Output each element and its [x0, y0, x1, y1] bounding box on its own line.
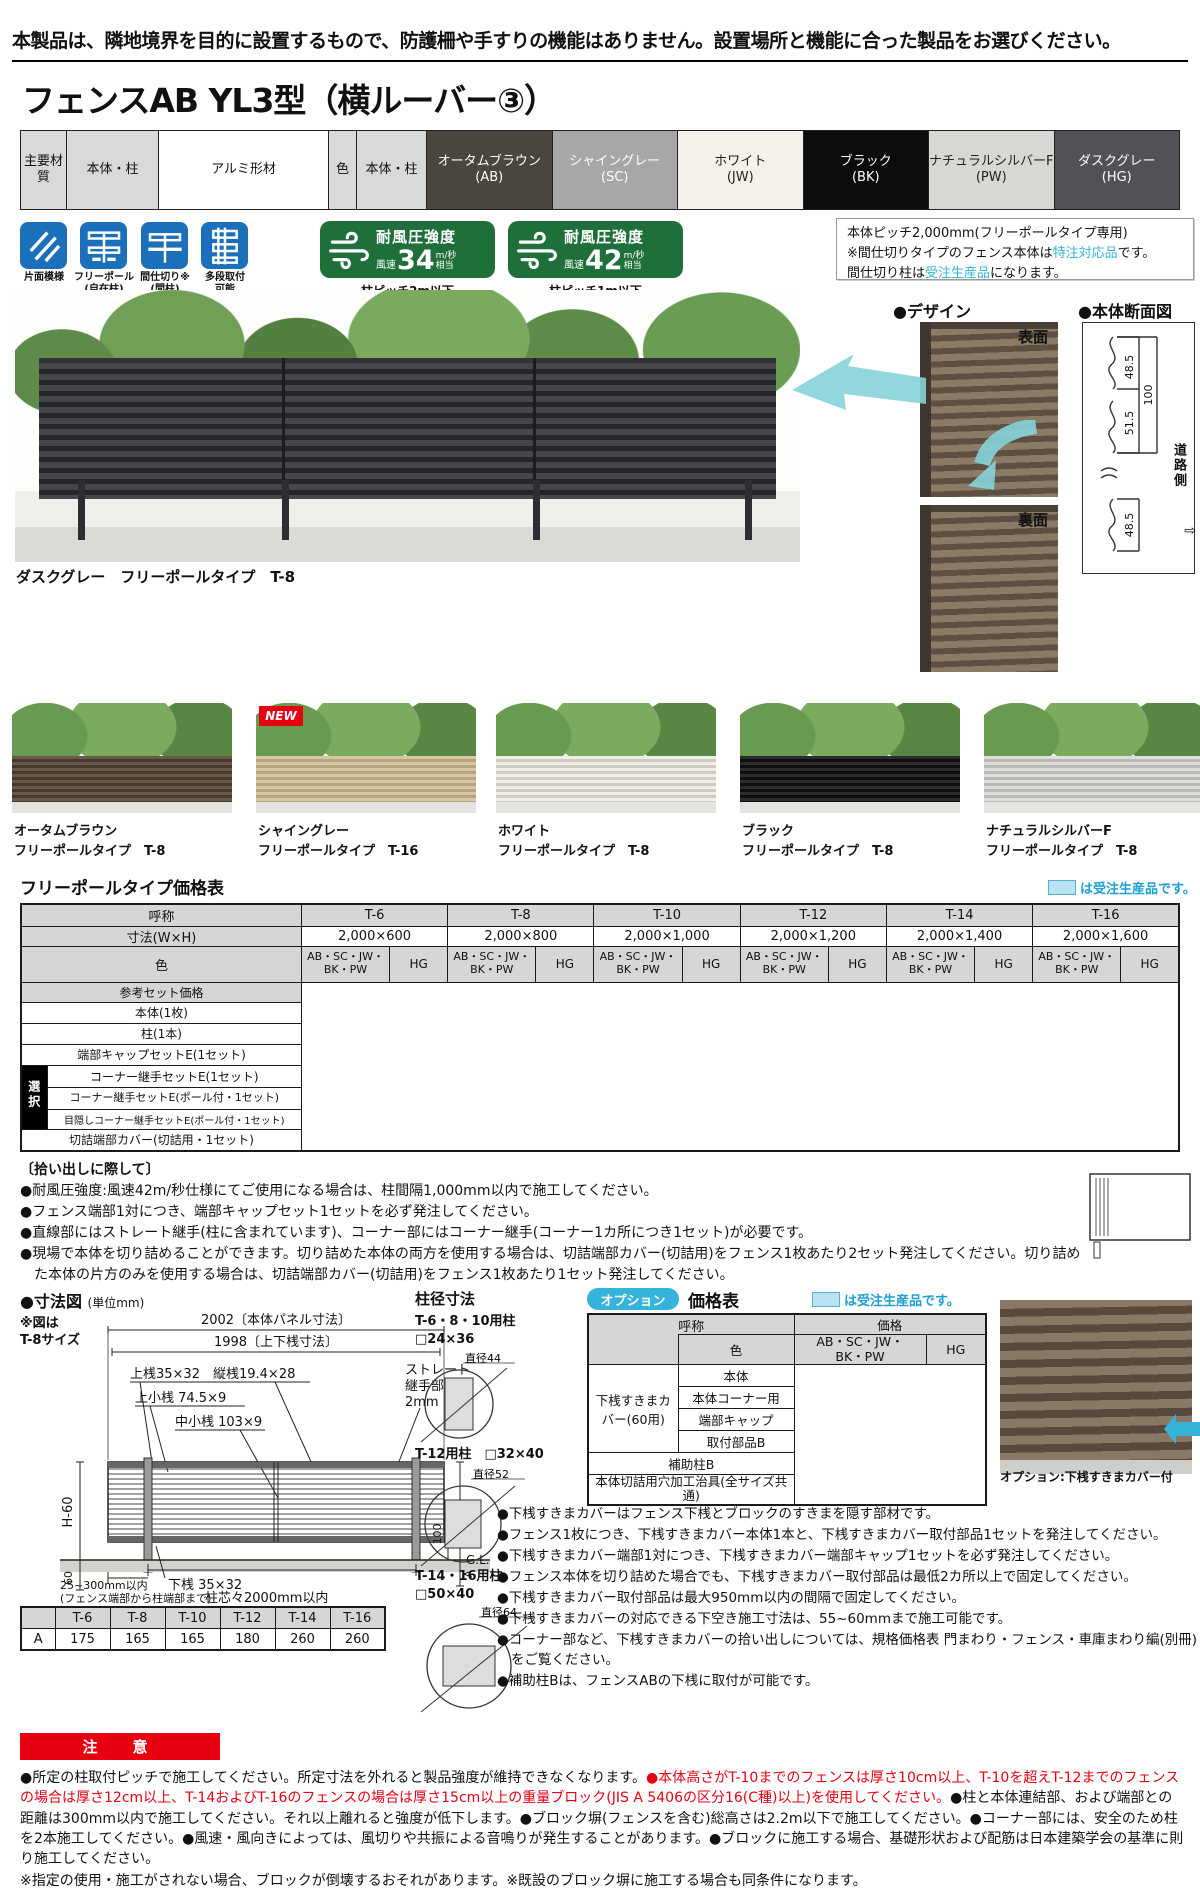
option-price-table: 呼称 色 価格 AB・SC・JW・BK・PW HG 下桟すきまカバー(60用) … [587, 1313, 987, 1506]
materials-value: アルミ形材 [159, 131, 329, 209]
option-note: ●下桟すきまカバー取付部品は最大950mm以内の間隔で固定してください。 [497, 1588, 1200, 1609]
photo-fence [39, 358, 777, 499]
materials-part-label: 本体・柱 [67, 131, 159, 209]
wind-badge-42: 耐風圧強度 風速 42 m/秒相当 [508, 221, 683, 278]
color-swatch-jw: ホワイト(JW) [678, 131, 804, 209]
post-circle-diagram-1: 直径44 [415, 1350, 535, 1444]
dim-value: 2,000×600 [301, 926, 447, 946]
color-part-label: 本体・柱 [357, 131, 427, 209]
partition-icon [141, 222, 188, 269]
color-group-line: BK・PW [450, 964, 533, 977]
color-group-line: BK・PW [304, 964, 387, 977]
option-note: ●下桟すきまカバーはフェンス下桟とブロックのすきまを隠す部材です。 [497, 1504, 1200, 1525]
info-line2-highlight: 特注対応品 [1053, 246, 1118, 261]
road-side-label: 道路側 [1169, 443, 1188, 488]
size-header: T-14 [886, 904, 1032, 926]
option-note: ●コーナー部など、下桟すきまカバーの拾い出しについては、規格価格表 門まわり・フ… [497, 1630, 1200, 1672]
color-group: AB・SC・JW・BK・PW [301, 946, 389, 982]
top-rail-label: 上桟35×32 縦桟19.4×28 [130, 1367, 295, 1382]
feature-label: 片面模様 [14, 272, 74, 284]
dim-value: 2,000×1,400 [886, 926, 1032, 946]
color-group-line: BK・PW [797, 1350, 924, 1364]
option-note: ●補助柱Bは、フェンスABの下桟に取付が可能です。 [497, 1671, 1200, 1692]
dim-value: 2,000×1,000 [594, 926, 740, 946]
size-header: T-6 [301, 904, 447, 926]
color-group: AB・SC・JW・BK・PW [886, 946, 974, 982]
color-group-hg: HG [536, 946, 594, 982]
section-dim-48-bottom: 48.5 [1123, 513, 1136, 538]
option-aux-post: 補助柱B [588, 1453, 794, 1475]
caution-text: ●所定の柱取付ピッチで施工してください。所定寸法を外れると製品強度が維持できなく… [20, 1768, 1186, 1892]
color-code: (AB) [475, 170, 503, 186]
info-line3: 間仕切り柱は受注生産品になります。 [847, 264, 1183, 284]
option-jig: 本体切詰用穴加工治具(全サイズ共通) [588, 1475, 794, 1505]
a-value: 260 [330, 1629, 385, 1651]
variant-type: フリーポールタイプ T-8 [498, 840, 649, 859]
option-name-header: 呼称 [589, 1315, 794, 1335]
color-group: AB・SC・JW・BK・PW [594, 946, 682, 982]
rail-dim-label: 1998〔上下桟寸法〕 [214, 1335, 338, 1350]
color-header: 色 [329, 131, 357, 209]
wind-badge-title: 耐風圧強度 [564, 226, 644, 247]
option-name-header-cell: 呼称 色 [588, 1314, 794, 1365]
color-group: AB・SC・JW・BK・PW [1033, 946, 1121, 982]
wind-speed-prefix: 風速 [564, 261, 584, 271]
dim-row-label: 寸法(W×H) [21, 926, 301, 946]
design-section-title: ●デザイン [893, 298, 971, 322]
mid-sub-rail-label: 中小桟 103×9 [175, 1415, 262, 1430]
set-price-label: 参考セット価格 [21, 982, 301, 1002]
select-label: 選択 [26, 1080, 43, 1110]
fence-post [745, 480, 752, 540]
design-back-image [920, 505, 1058, 672]
option-note: ●下桟すきまカバーの対応できる下空き施工寸法は、55~60mmまで施工可能です。 [497, 1609, 1200, 1630]
post-pitch-label: 柱芯々2000mm以内 [205, 1590, 328, 1604]
pickup-note: ●耐風圧強度:風速42m/秒仕様にてご使用になる場合は、柱間隔1,000mm以内… [20, 1181, 1090, 1202]
item-row-label: 柱(1本) [21, 1023, 301, 1044]
color-group-hg: HG [975, 946, 1033, 982]
end-cap-diagram [1078, 1170, 1196, 1262]
variant-type: フリーポールタイプ T-16 [258, 840, 418, 859]
option-group-label: 下桟すきまカバー(60用) [588, 1365, 678, 1453]
post-size-name: T-6・8・10用柱 [415, 1313, 516, 1331]
size-header: T-10 [594, 904, 740, 926]
a-table-header: T-8 [110, 1607, 165, 1629]
color-group-line: AB・SC・JW・ [797, 1335, 924, 1349]
feature-label-text: フリーポール [74, 272, 134, 284]
post-size-dim: □50×40 [415, 1586, 503, 1604]
fence-post [533, 480, 540, 540]
option-price-blank-area [794, 1365, 986, 1505]
dim-unit-text: (単位mm) [88, 1296, 145, 1310]
option-note: ●下桟すきまカバー端部1対につき、下桟すきまカバー端部キャップ1セットを必ず発注… [497, 1546, 1200, 1567]
variant-base [256, 802, 476, 813]
section-dim-100: 100 [1142, 385, 1155, 406]
item-row-label: 本体(1枚) [21, 1002, 301, 1023]
a-row-label: A [21, 1629, 55, 1651]
info-line3-pre: 間仕切り柱は [847, 266, 925, 281]
section-view-title: ●本体断面図 [1078, 298, 1172, 322]
variant-fence [256, 756, 476, 802]
option-item: 端部キャップ [678, 1409, 794, 1431]
a-table-header: T-6 [55, 1607, 110, 1629]
color-name: ナチュラルシルバーF [929, 154, 1053, 170]
cut-end-cover-label: 切詰端部カバー(切詰用・1セット) [21, 1129, 301, 1151]
a-table-corner [21, 1607, 55, 1629]
color-swatch-sc: シャイングレー(SC) [553, 131, 679, 209]
road-side-arrow-icon: ⇨ [1184, 523, 1196, 539]
pickup-note: ●フェンス端部1対につき、端部キャップセット1セットを必ず発注してください。 [20, 1202, 1090, 1223]
select-label-cell: 選択 [21, 1065, 47, 1129]
wind-icon [516, 229, 558, 271]
a-value: 180 [220, 1629, 275, 1651]
variant-name: ブラック [742, 820, 794, 839]
feature-label-text: 間仕切り※ [135, 272, 195, 284]
variant-photo-jw [496, 703, 716, 813]
price-table: 呼称 T-6 T-8 T-10 T-12 T-14 T-16 寸法(W×H) 2… [20, 903, 1180, 1152]
feature-label-text: 片面模様 [14, 272, 74, 284]
legend-swatch [1048, 880, 1076, 895]
top-notice: 本製品は、隣地境界を目的に設置するもので、防護柵や手すりの機能はありません。設置… [12, 26, 1188, 62]
color-name: ブラック [840, 154, 892, 170]
dim-value: 2,000×1,600 [1033, 926, 1179, 946]
size-header: T-12 [740, 904, 886, 926]
color-code: (PW) [976, 170, 1007, 186]
info-line2: ※間仕切りタイプのフェンス本体は特注対応品です。 [847, 244, 1183, 264]
option-item: 本体 [678, 1365, 794, 1387]
variant-fence [984, 756, 1200, 802]
back-face-label: 裏面 [1018, 509, 1048, 530]
option-item: 本体コーナー用 [678, 1387, 794, 1409]
post-size-label: T-12用柱 □32×40 [415, 1446, 544, 1464]
color-row-label: 色 [21, 946, 301, 982]
embed-depth-table: T-6 T-8 T-10 T-12 T-14 T-16 A 175 165 16… [20, 1606, 386, 1651]
color-code: (BK) [852, 170, 880, 186]
airflow-curve-arrow-icon [948, 420, 1043, 495]
a-table-header: T-16 [330, 1607, 385, 1629]
wind-speed-unit2: 相当 [624, 261, 645, 271]
item-row-label: 端部キャップセットE(1セット) [21, 1044, 301, 1065]
variant-type: フリーポールタイプ T-8 [742, 840, 893, 859]
info-line3-post: になります。 [990, 266, 1067, 281]
post-size-title: 柱径寸法 [415, 1288, 475, 1309]
section-view-box: 48.5 51.5 100 48.5 道路側 ⇨ [1082, 322, 1195, 574]
color-group-line: BK・PW [1035, 964, 1118, 977]
pickup-notes: 〔拾い出しに際して〕 ●耐風圧強度:風速42m/秒仕様にてご使用になる場合は、柱… [20, 1160, 1090, 1286]
front-face-label: 表面 [1018, 326, 1048, 347]
variant-fence [496, 756, 716, 802]
color-name: ホワイト [714, 154, 766, 170]
color-code: (HG) [1102, 170, 1132, 186]
new-badge: NEW [259, 706, 303, 726]
variant-name: ホワイト [498, 820, 550, 839]
wind-speed-unit2: 相当 [436, 261, 457, 271]
wind-badge-title: 耐風圧強度 [376, 226, 456, 247]
color-swatch-bk: ブラック(BK) [804, 131, 930, 209]
fence-panel-separator [533, 358, 536, 494]
price-blank-area [301, 982, 1179, 1151]
option-note: ●フェンス1枚につき、下桟すきまカバー本体1本と、下桟すきまカバー取付部品1セッ… [497, 1525, 1200, 1546]
caution-note: ※指定の使用・施工がされない場合、ブロックが倒壊するおそれがあります。※既設のブ… [20, 1871, 1186, 1891]
variant-base [740, 802, 960, 813]
option-photo-caption: オプション:下桟すきまカバー付 [1000, 1468, 1173, 1485]
wind-speed-value: 42 [585, 247, 623, 274]
variant-fence [740, 756, 960, 802]
col-header: 呼称 [21, 904, 301, 926]
wind-badge-34: 耐風圧強度 風速 34 m/秒相当 [320, 221, 495, 278]
variant-base [12, 802, 232, 813]
variant-name: ナチュラルシルバーF [986, 820, 1112, 839]
fence-panel-separator [282, 358, 285, 494]
post-size-dim: □32×40 [484, 1447, 543, 1462]
airflow-arrow-icon [788, 348, 928, 438]
option-arrow-icon [1164, 1412, 1200, 1446]
select-row-label: コーナー継手セットE(ポール付・1セット) [47, 1087, 301, 1109]
photo-pavement [15, 527, 800, 562]
option-item: 取付部品B [678, 1431, 794, 1453]
option-photo [1000, 1300, 1192, 1474]
pickup-notes-title: 〔拾い出しに際して〕 [20, 1160, 1090, 1181]
edge-dim-label: 25~300mm以内 [60, 1578, 148, 1592]
dim-title-text: ●寸法図 [20, 1292, 82, 1311]
dim-value: 2,000×800 [448, 926, 594, 946]
option-color-group: AB・SC・JW・BK・PW [794, 1335, 926, 1365]
legend-text: は受注生産品です。 [1080, 878, 1196, 897]
info-line3-highlight: 受注生産品 [925, 266, 990, 281]
select-row-label: コーナー継手セットE(1セット) [47, 1065, 301, 1087]
wind-speed-unit: m/秒 [624, 251, 645, 261]
materials-header: 主要材質 [21, 131, 67, 209]
a-table-header: T-14 [275, 1607, 330, 1629]
variant-photo-ab [12, 703, 232, 813]
multi-level-mount-icon [201, 222, 248, 269]
post-size-name: T-12用柱 [415, 1447, 471, 1462]
color-group-hg: HG [682, 946, 740, 982]
made-to-order-legend: は受注生産品です。 [1048, 878, 1196, 897]
variant-type: フリーポールタイプ T-8 [986, 840, 1137, 859]
size-header: T-16 [1033, 904, 1179, 926]
top-sub-rail-label: 上小桟 74.5×9 [135, 1391, 226, 1406]
legend-swatch [812, 1292, 840, 1307]
h60-label: H-60 [61, 1496, 76, 1527]
dim-value: 2,000×1,200 [740, 926, 886, 946]
color-group: AB・SC・JW・BK・PW [740, 946, 828, 982]
materials-color-table: 主要材質 本体・柱 アルミ形材 色 本体・柱 オータムブラウン(AB) シャイン… [20, 130, 1180, 210]
fence-post [78, 480, 85, 540]
color-group-hg: HG [828, 946, 886, 982]
color-group: AB・SC・JW・BK・PW [448, 946, 536, 982]
color-group-hg: HG [390, 946, 448, 982]
color-swatch-pw: ナチュラルシルバーF(PW) [929, 131, 1055, 209]
a-value: 260 [275, 1629, 330, 1651]
variant-fence [12, 756, 232, 802]
caution-seg-black: ●所定の柱取付ピッチで施工してください。所定寸法を外れると製品強度が維持できなく… [20, 1770, 646, 1786]
select-row-label: 目隠しコーナー継手セットE(ポール付・1セット) [47, 1109, 301, 1129]
color-group-line: BK・PW [596, 964, 679, 977]
post-size-label: T-6・8・10用柱□24×36 [415, 1313, 516, 1348]
color-swatch-hg: ダスクグレー(HG) [1055, 131, 1180, 209]
info-line2-post: です。 [1118, 246, 1156, 261]
color-code: (SC) [601, 170, 628, 186]
color-code: (JW) [727, 170, 754, 186]
dimension-figure-title: ●寸法図 (単位mm) [20, 1288, 144, 1312]
size-header: T-8 [448, 904, 594, 926]
legend-text: は受注生産品です。 [844, 1290, 960, 1309]
variant-base [984, 802, 1200, 813]
a-table-header: T-10 [165, 1607, 220, 1629]
variant-photo-bk [740, 703, 960, 813]
option-badge: オプション [587, 1288, 679, 1310]
main-product-photo [15, 290, 800, 562]
color-name: オータムブラウン [438, 154, 541, 170]
color-name: シャイングレー [569, 154, 660, 170]
pickup-note: ●現場で本体を切り詰めることができます。切り詰めた本体の両方を使用する場合は、切… [20, 1244, 1090, 1286]
color-swatch-ab: オータムブラウン(AB) [427, 131, 553, 209]
color-group-line: BK・PW [889, 964, 972, 977]
pitch-info-box: 本体ピッチ2,000mm(フリーポールタイプ専用) ※間仕切りタイプのフェンス本… [836, 218, 1194, 280]
color-group-hg: HG [1121, 946, 1179, 982]
wind-icon [328, 229, 370, 271]
option-table-title: 価格表 [688, 1287, 739, 1312]
a-value: 165 [110, 1629, 165, 1651]
wind-speed-prefix: 風速 [376, 261, 396, 271]
option-note: ●フェンス本体を切り詰めた場合でも、下桟すきまカバー取付部品は最低2カ所以上で固… [497, 1567, 1200, 1588]
panel-dim-label: 2002〔本体パネル寸法〕 [201, 1313, 351, 1328]
option-notes: ●下桟すきまカバーはフェンス下桟とブロックのすきまを隠す部材です。 ●フェンス1… [497, 1504, 1200, 1692]
free-pole-icon [80, 222, 127, 269]
info-line2-pre: ※間仕切りタイプのフェンス本体は [847, 246, 1053, 261]
section-dim-51: 51.5 [1123, 411, 1136, 436]
wind-speed-value: 34 [397, 247, 435, 274]
edge-dim-note: (フェンス端部から柱端部まで) [60, 1591, 211, 1604]
post-size-name: T-14・16用柱 [415, 1568, 503, 1586]
single-face-pattern-icon [20, 222, 67, 269]
a-table-header: T-12 [220, 1607, 275, 1629]
option-color-group-hg: HG [926, 1335, 986, 1365]
variant-photo-pw [984, 703, 1200, 813]
color-group-line: BK・PW [743, 964, 826, 977]
color-name: ダスクグレー [1078, 154, 1155, 170]
page-title: フェンスAB YL3型（横ルーバー③） [22, 74, 556, 122]
pickup-note: ●直線部にはストレート継手(柱に含まれています)、コーナー部にはコーナー継手(コ… [20, 1223, 1090, 1244]
wind-speed-unit: m/秒 [436, 251, 457, 261]
caution-paragraph: ●所定の柱取付ピッチで施工してください。所定寸法を外れると製品強度が維持できなく… [20, 1768, 1186, 1869]
price-table-title: フリーポールタイプ価格表 [20, 874, 224, 899]
info-line1: 本体ピッチ2,000mm(フリーポールタイプ専用) [847, 224, 1183, 244]
post-size-label: T-14・16用柱□50×40 [415, 1568, 503, 1603]
variant-base [496, 802, 716, 813]
option-price-header: 価格 [794, 1314, 986, 1335]
variant-type: フリーポールタイプ T-8 [14, 840, 165, 859]
post-size-dim: □24×36 [415, 1331, 516, 1349]
main-photo-caption: ダスクグレー フリーポールタイプ T-8 [16, 566, 295, 587]
option-color-header: 色 [678, 1334, 794, 1364]
a-value: 175 [55, 1629, 110, 1651]
caution-title-bar: 注 意 [20, 1733, 220, 1760]
a-value: 165 [165, 1629, 220, 1651]
variant-name: オータムブラウン [14, 820, 117, 839]
variant-name: シャイングレー [258, 820, 349, 839]
fence-post [282, 480, 289, 540]
feature-label-text: 多段取付 [195, 272, 255, 284]
made-to-order-legend: は受注生産品です。 [812, 1290, 960, 1309]
section-dim-48-top: 48.5 [1123, 355, 1136, 380]
